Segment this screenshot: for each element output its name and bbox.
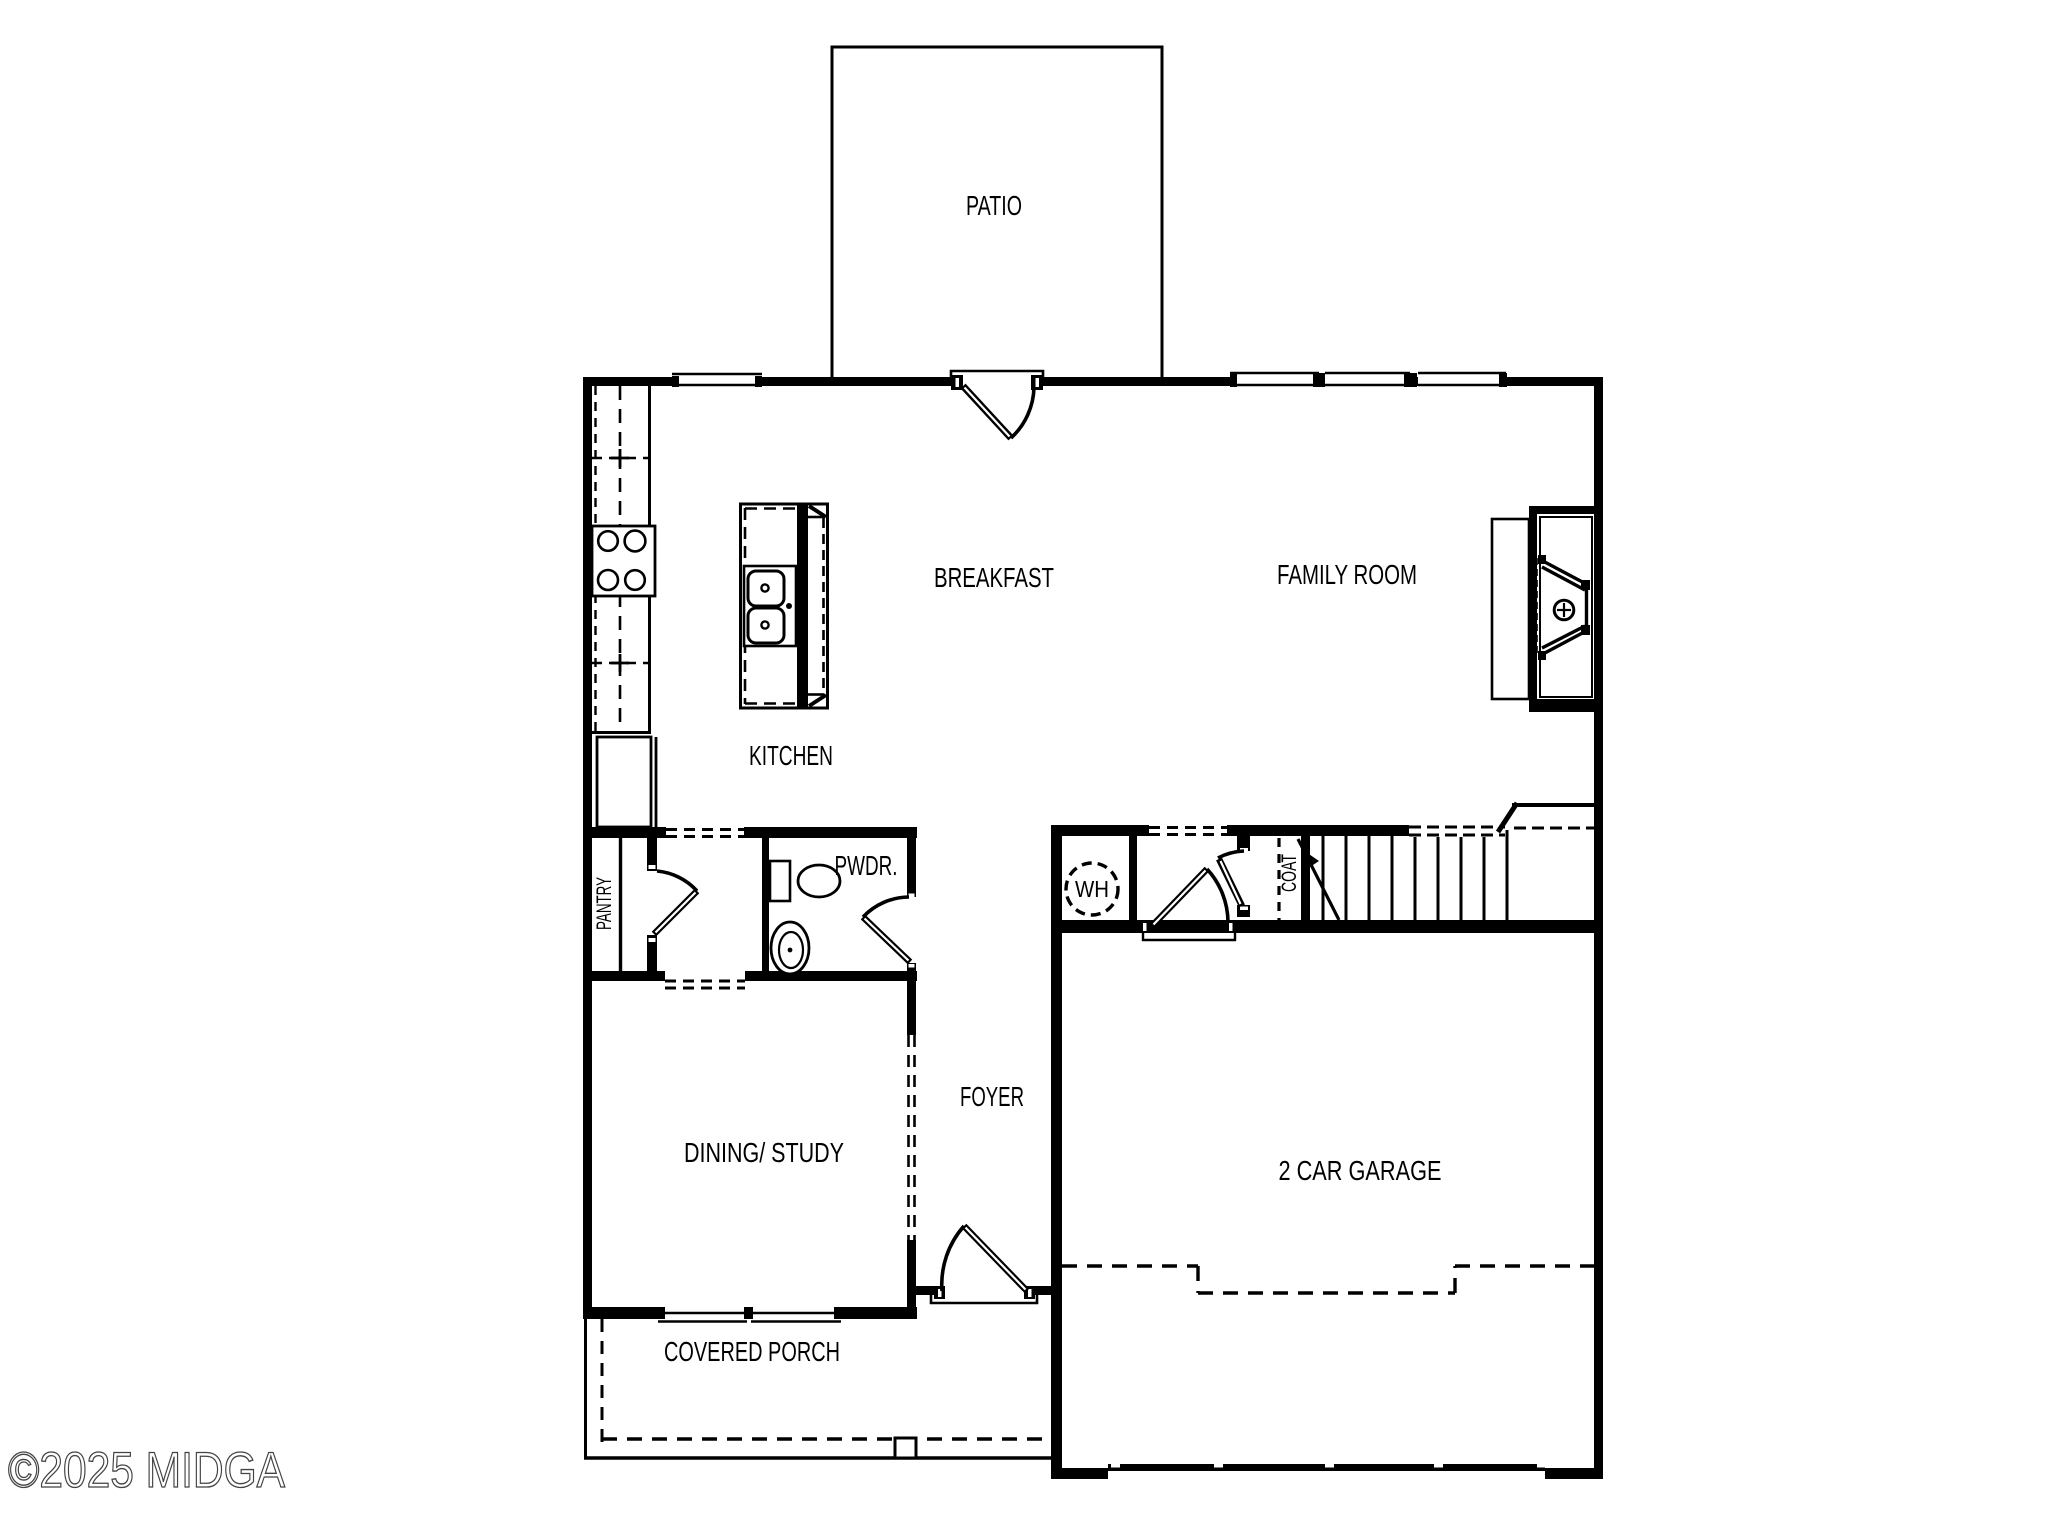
svg-text:FAMILY ROOM: FAMILY ROOM — [1277, 559, 1417, 590]
svg-text:COAT: COAT — [1278, 854, 1301, 892]
svg-text:2 CAR GARAGE: 2 CAR GARAGE — [1279, 1155, 1442, 1186]
svg-text:©2025 MIDGA: ©2025 MIDGA — [8, 1442, 286, 1498]
svg-text:DINING/ STUDY: DINING/ STUDY — [684, 1137, 844, 1168]
svg-text:PANTRY: PANTRY — [593, 877, 616, 930]
svg-text:WH: WH — [1075, 876, 1109, 902]
svg-text:COVERED PORCH: COVERED PORCH — [664, 1336, 840, 1367]
svg-text:BREAKFAST: BREAKFAST — [934, 562, 1054, 593]
svg-text:FOYER: FOYER — [960, 1081, 1024, 1112]
svg-text:PWDR.: PWDR. — [835, 850, 898, 881]
svg-text:KITCHEN: KITCHEN — [749, 740, 833, 771]
svg-text:PATIO: PATIO — [966, 190, 1022, 221]
